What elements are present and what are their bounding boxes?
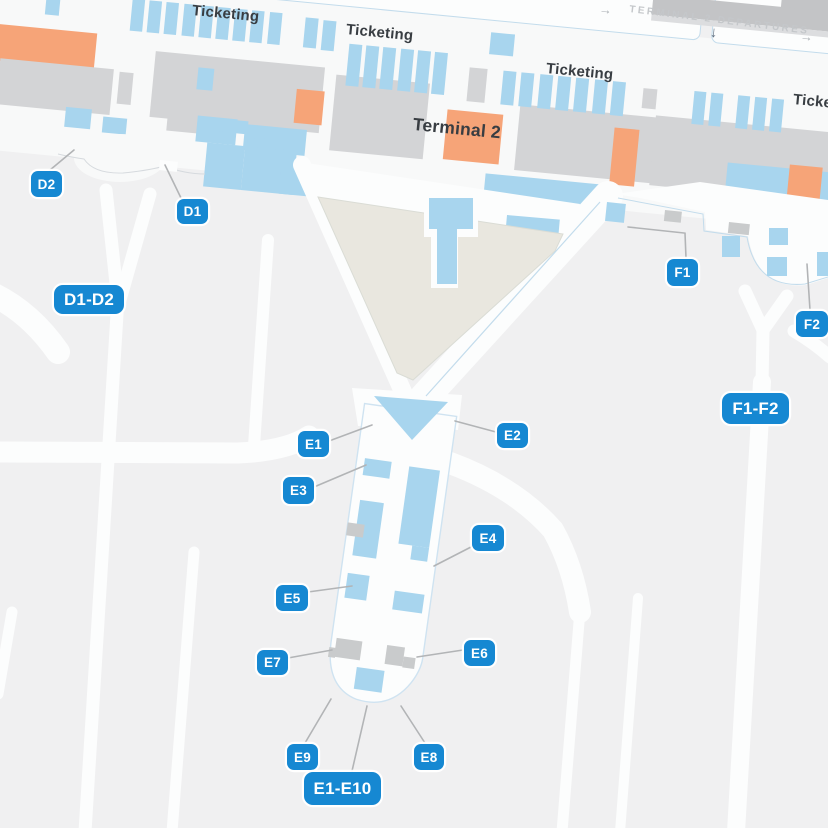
- gate-badge-e8: E8: [414, 744, 444, 770]
- gate-badge-f2: F2: [796, 311, 828, 337]
- gate-badge-e4: E4: [472, 525, 504, 551]
- d1-jet-bridge: [159, 160, 178, 172]
- gate-badge-f1-f2: F1-F2: [722, 393, 789, 424]
- gate-badge-e5: E5: [276, 585, 308, 611]
- f1-jet-bridge: [664, 210, 682, 223]
- concession-block: [294, 89, 325, 126]
- gate-room: [196, 67, 214, 90]
- connector-structure: [429, 198, 473, 229]
- terminal-map: Ticketing Ticketing Ticketing Ticketing …: [0, 0, 828, 828]
- gate-room: [102, 116, 127, 134]
- gate-badge-e3: E3: [283, 477, 314, 504]
- gate-badge-d2: D2: [31, 171, 62, 197]
- gate-badge-e7: E7: [257, 650, 288, 675]
- gate-badge-e1-e10: E1-E10: [304, 772, 381, 805]
- holdroom-area: [203, 143, 245, 190]
- f-road-stem: [762, 330, 763, 386]
- right-arrow-icon: →: [598, 1, 612, 17]
- gate-badge-e6: E6: [464, 640, 495, 666]
- d-rotunda: [74, 134, 166, 182]
- gate-badge-e1: E1: [298, 431, 329, 457]
- gate-badge-e9: E9: [287, 744, 318, 770]
- gate-badge-f1: F1: [667, 259, 698, 286]
- leader-line-f1: [685, 233, 686, 258]
- gate-badge-d1: D1: [177, 199, 208, 224]
- gate-room: [64, 107, 92, 129]
- f2-jet-bridge: [728, 222, 750, 235]
- gate-room: [489, 32, 515, 56]
- building-block: [466, 67, 487, 103]
- gate-badge-d1-d2: D1-D2: [54, 285, 124, 314]
- connector-structure: [437, 229, 457, 284]
- checkin-counter: [45, 0, 61, 16]
- gate-badge-e2: E2: [497, 423, 528, 448]
- right-arrow-icon: →: [799, 28, 813, 44]
- building-block: [642, 88, 658, 109]
